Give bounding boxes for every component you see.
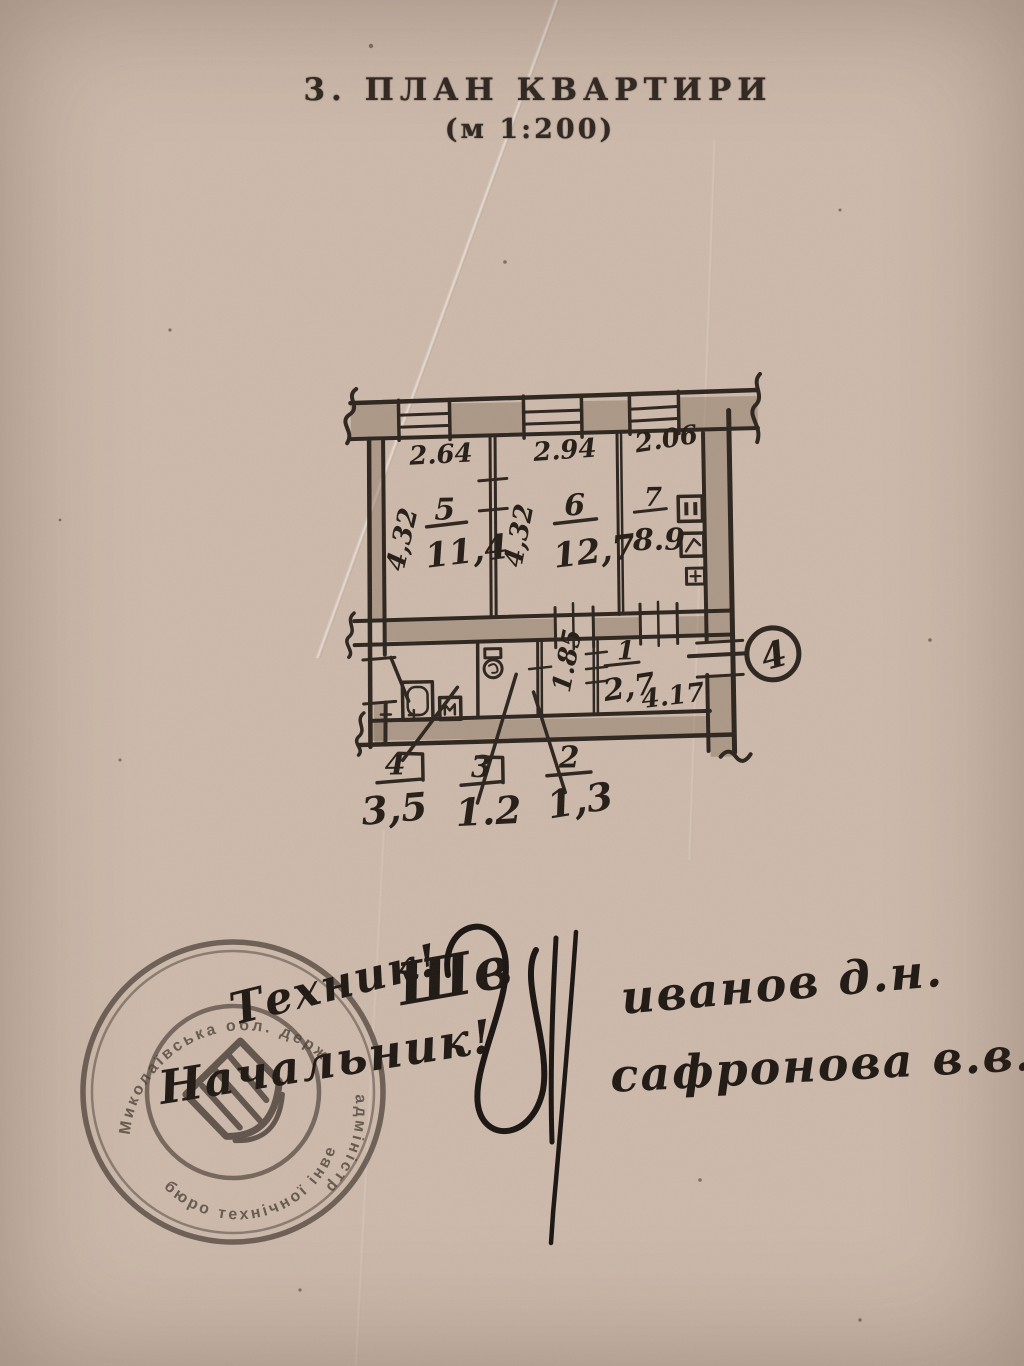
toilet-symbol xyxy=(484,649,503,678)
dim-top-2: 2.94 xyxy=(531,434,597,468)
entry-door-leaf xyxy=(391,657,409,701)
balcony-opening-tick xyxy=(697,674,743,677)
callout-3-number: 3 xyxy=(471,750,492,785)
stove-icon xyxy=(678,496,702,521)
signature-block: Техник! Начальник! Шв иванов д.н. сафрон… xyxy=(0,880,1024,1366)
plan-scale-note: (м 1:200) xyxy=(18,114,1024,145)
handwritten-role-chief: Начальник! xyxy=(153,1009,498,1116)
room-1-label: 1 2,7 xyxy=(599,636,658,709)
partition-bath-wc xyxy=(477,643,479,717)
handwritten-name-safronova: сафронова в.в. xyxy=(609,1027,1024,1103)
balcony-opening-tick xyxy=(697,640,743,643)
floor-plan: 4 2.64 2.94 2.06 4,32 4,32 1.85 4.17 5 1… xyxy=(340,355,840,855)
boiler-icon xyxy=(686,568,704,584)
room-6-label: 6 12,7 xyxy=(550,487,638,577)
handwritten-name-ivanov: иванов д.н. xyxy=(619,943,946,1025)
wall-break-left xyxy=(356,713,364,755)
callout-2-number: 2 xyxy=(557,740,579,775)
balcony-number: 4 xyxy=(756,632,791,679)
room-6-number: 6 xyxy=(564,488,586,523)
partition-room6-room7 xyxy=(616,434,624,614)
dim-top-3: 2.06 xyxy=(632,420,700,460)
callout-room4: 4 3,5 xyxy=(359,747,430,834)
window-1 xyxy=(398,399,450,440)
callout-4-area: 3,5 xyxy=(359,783,429,834)
callout-room3: 3 1.2 xyxy=(454,749,523,835)
callout-2-area: 1,3 xyxy=(544,773,616,828)
callout-3-area: 1.2 xyxy=(454,787,522,835)
dim-top-1: 2.64 xyxy=(408,438,474,471)
dim-room5-depth: 4,32 xyxy=(381,505,424,573)
room-6-area: 12,7 xyxy=(551,527,638,577)
photocopied-page: 3. ПЛАН КВАРТИРИ (м 1:200) xyxy=(0,0,1024,1366)
room-7-area: 8.9 xyxy=(632,522,686,558)
room-5-label: 5 11,4 xyxy=(422,491,510,576)
page-title: 3. ПЛАН КВАРТИРИ xyxy=(26,72,1024,108)
